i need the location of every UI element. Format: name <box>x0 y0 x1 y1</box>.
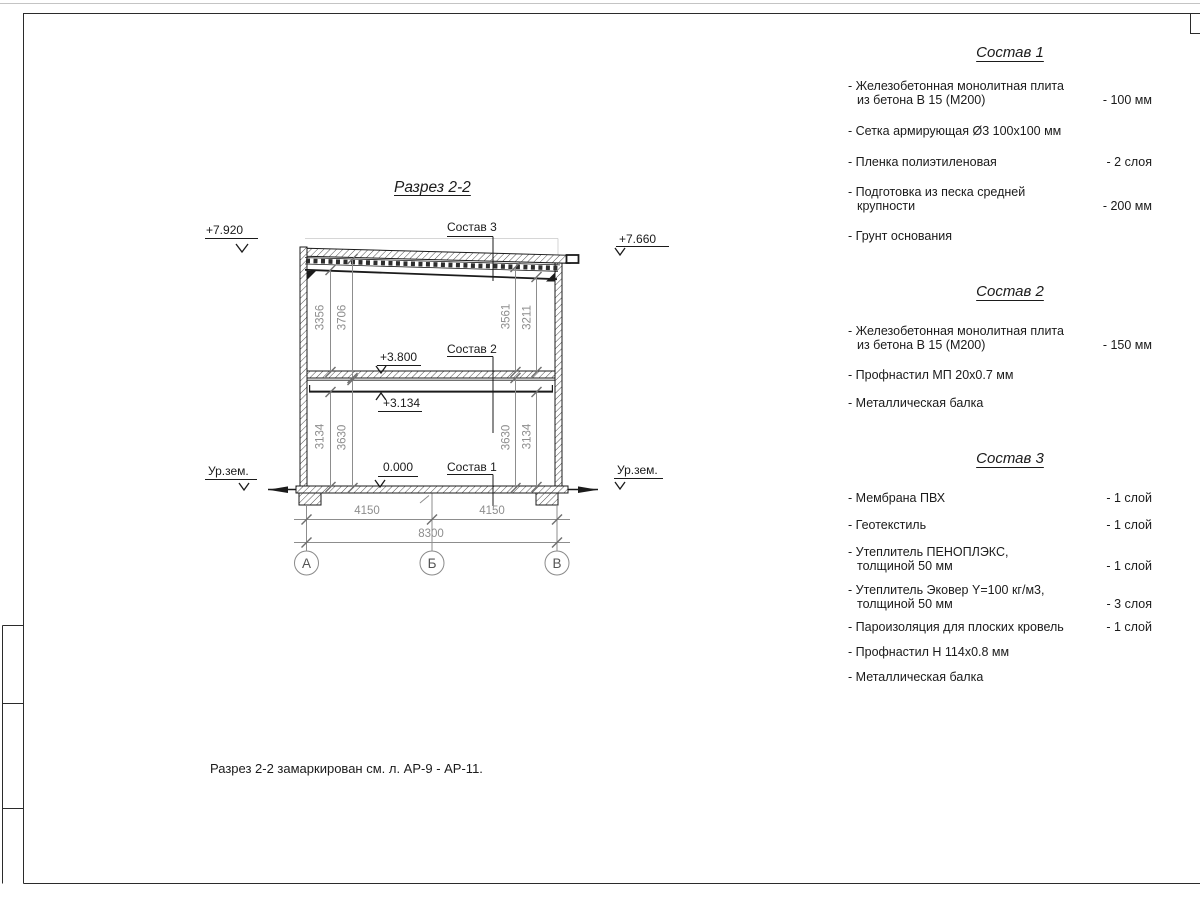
spec-item-text: - Мембрана ПВХ <box>848 492 945 506</box>
spec-item-value: - 1 слой <box>1100 560 1152 574</box>
spec-item-text: - Сетка армирующая Ø3 100x100 мм <box>848 125 1061 139</box>
spec-item: - Утеплитель Эковер Y=100 кг/м3, толщино… <box>848 584 1152 611</box>
drawing-title: Разрез 2-2 <box>394 181 471 194</box>
drawing-sheet: Разрез 2-2 +7.920 +7.660 +3.800 +3.134 0… <box>0 0 1200 900</box>
spec-item-value: - 1 слой <box>1100 519 1152 533</box>
left-wall <box>300 247 307 487</box>
spec-item-text: - Металлическая балка <box>848 397 983 411</box>
spec-item-value: - 3 слоя <box>1101 598 1152 612</box>
spec-item: - Железобетонная монолитная плита из бет… <box>848 325 1152 352</box>
dim-span-right: 4150 <box>462 505 522 517</box>
spec-item: - Грунт основания <box>848 230 1152 244</box>
spec-item: - Утеплитель ПЕНОПЛЭКС, толщиной 50 мм -… <box>848 546 1152 573</box>
building-section <box>268 247 598 505</box>
elevation-top-left: +7.920 <box>206 224 243 237</box>
spec-item-text: - Железобетонная монолитная плита из бет… <box>848 80 1064 107</box>
vdim-right-upper-2: 3211 <box>522 296 535 340</box>
spec-item-text: - Утеплитель Эковер Y=100 кг/м3, толщино… <box>848 584 1044 611</box>
spec-panel-3-title: Состав 3 <box>910 450 1110 467</box>
ground-slab <box>268 486 598 505</box>
vdim-right-lower-1: 3630 <box>501 416 514 460</box>
spec-item-text: - Пленка полиэтиленовая <box>848 156 997 170</box>
spec-item: - Профнастил Н 114x0.8 мм <box>848 646 1152 660</box>
spec-item: - Пленка полиэтиленовая - 2 слоя <box>848 156 1152 170</box>
spec-item-value: - 150 мм <box>1097 339 1152 353</box>
spec-item: - Профнастил МП 20x0.7 мм <box>848 369 1152 383</box>
spec-item: - Металлическая балка <box>848 397 1152 411</box>
spec-item-text: - Подготовка из песка средней крупности <box>848 186 1025 213</box>
level-mark-icons <box>236 244 625 490</box>
vdim-right-upper-1: 3561 <box>501 295 514 339</box>
spec-panel-1-title: Состав 1 <box>910 44 1110 61</box>
right-foundation-pad <box>536 493 558 505</box>
spec-item-text: - Профнастил МП 20x0.7 мм <box>848 369 1013 383</box>
spec-item-value: - 200 мм <box>1097 200 1152 214</box>
ground-level-label-right: Ур.зем. <box>617 464 658 477</box>
middle-floor-slab <box>307 371 555 392</box>
vdim-right-lower-2: 3134 <box>522 415 535 459</box>
leader-label-roof: Состав 3 <box>447 221 497 234</box>
spec-item-text: - Металлическая балка <box>848 671 983 685</box>
spec-item-value: - 1 слой <box>1100 621 1152 635</box>
spec-item: - Сетка армирующая Ø3 100x100 мм <box>848 125 1152 139</box>
elevation-floor2-top: +3.800 <box>380 351 417 364</box>
spec-item-value: - 1 слой <box>1100 492 1152 506</box>
spec-item: - Геотекстиль - 1 слой <box>848 519 1152 533</box>
spec-item: - Мембрана ПВХ - 1 слой <box>848 492 1152 506</box>
spec-item: - Пароизоляция для плоских кровель - 1 с… <box>848 621 1152 635</box>
leader-label-floor: Состав 2 <box>447 343 497 356</box>
grid-axis-a: А <box>296 556 318 571</box>
grid-axis-v: В <box>546 556 568 571</box>
vdim-left-upper-1: 3356 <box>315 296 328 340</box>
sheet-note: Разрез 2-2 замаркирован см. л. АР-9 - АР… <box>210 761 483 776</box>
spec-item-text: - Железобетонная монолитная плита из бет… <box>848 325 1064 352</box>
spec-item-value: - 2 слоя <box>1101 156 1152 170</box>
grid-axis-b: Б <box>421 556 443 571</box>
elevation-floor2-beam: +3.134 <box>383 397 420 410</box>
spec-item: - Подготовка из песка средней крупности … <box>848 186 1152 213</box>
spec-item-text: - Утеплитель ПЕНОПЛЭКС, толщиной 50 мм <box>848 546 1008 573</box>
leader-label-slab: Состав 1 <box>447 461 497 474</box>
spec-panel-2-title: Состав 2 <box>910 283 1110 300</box>
elevation-top-right: +7.660 <box>619 233 656 246</box>
vdim-left-upper-2: 3706 <box>337 296 350 340</box>
spec-item: - Железобетонная монолитная плита из бет… <box>848 80 1152 107</box>
dim-span-total: 8300 <box>401 528 461 540</box>
elevation-zero: 0.000 <box>383 461 413 474</box>
spec-item-text: - Геотекстиль <box>848 519 927 533</box>
right-wall <box>555 263 562 487</box>
ground-level-label-left: Ур.зем. <box>208 465 249 478</box>
spec-item-text: - Грунт основания <box>848 230 952 244</box>
dim-span-left: 4150 <box>337 505 397 517</box>
spec-item-text: - Пароизоляция для плоских кровель <box>848 621 1064 635</box>
spec-item-value: - 100 мм <box>1097 94 1152 108</box>
spec-item-text: - Профнастил Н 114x0.8 мм <box>848 646 1009 660</box>
vdim-left-lower-2: 3630 <box>337 416 350 460</box>
left-foundation-pad <box>299 493 321 505</box>
spec-item: - Металлическая балка <box>848 671 1152 685</box>
left-margin-boxes <box>3 626 24 884</box>
vdim-left-lower-1: 3134 <box>315 415 328 459</box>
